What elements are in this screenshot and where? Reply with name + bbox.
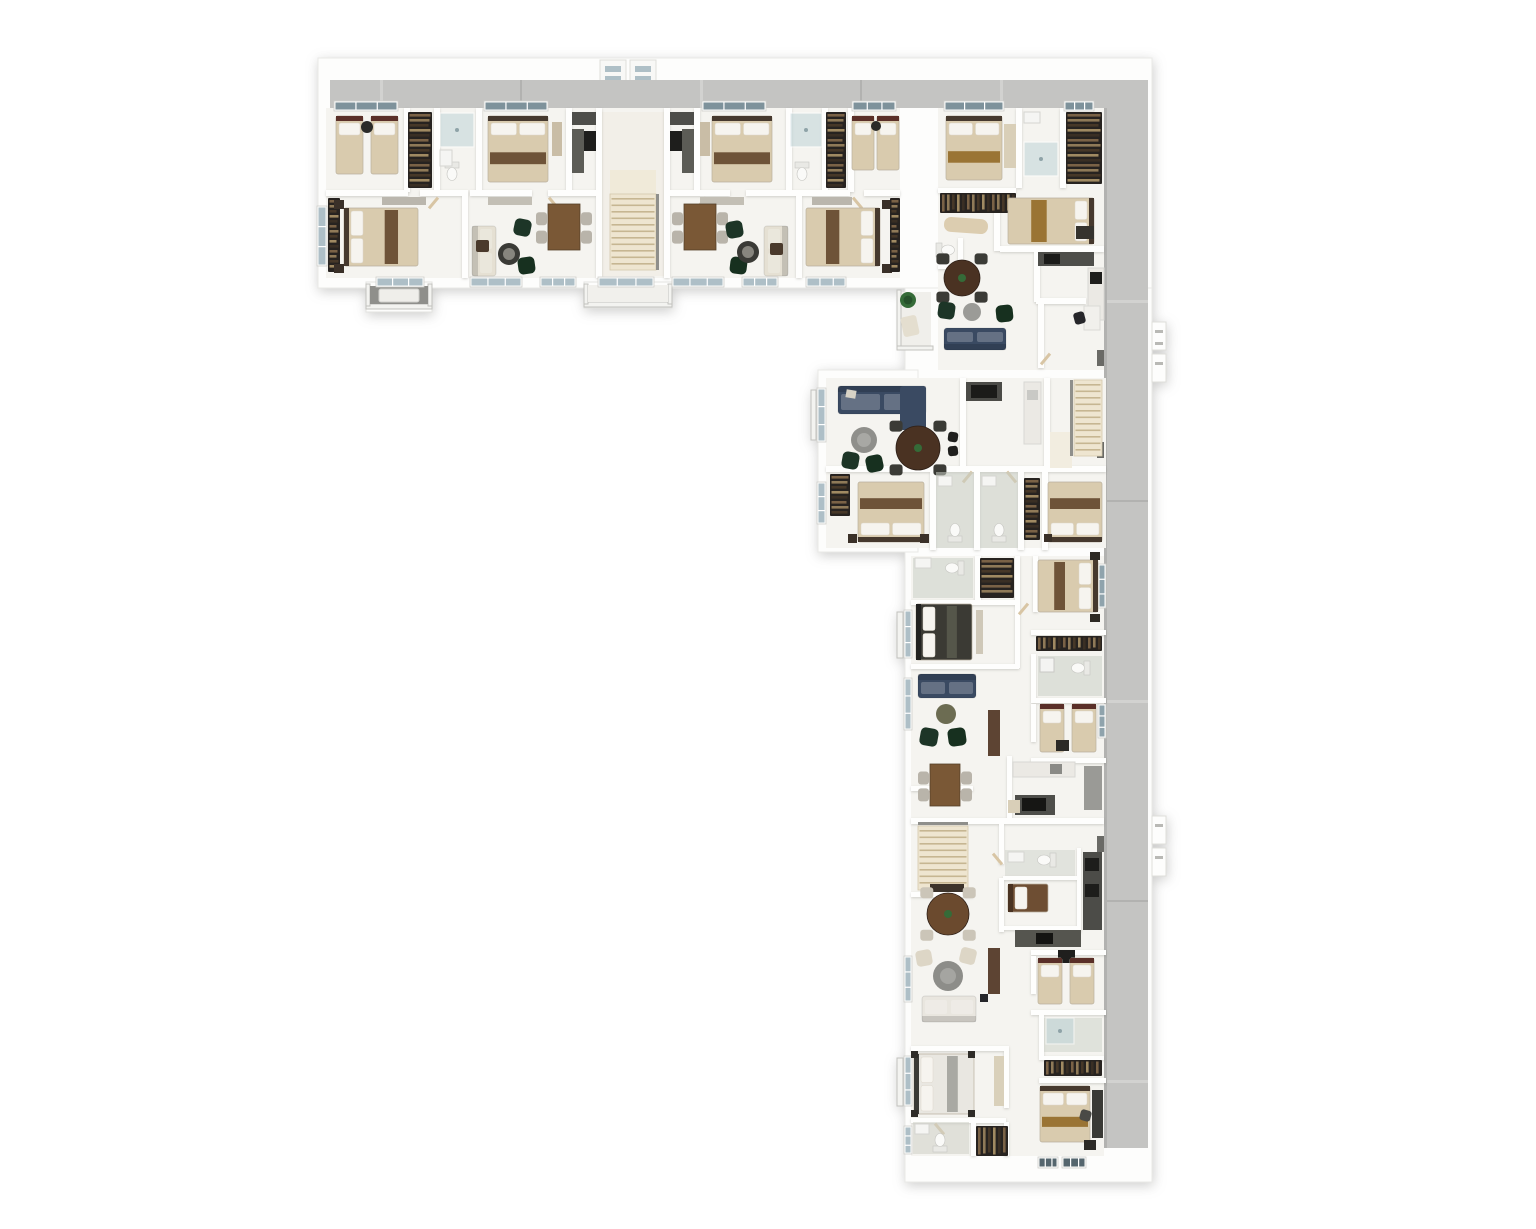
bed-single bbox=[336, 116, 363, 174]
wall bbox=[1031, 654, 1036, 698]
sink bbox=[1027, 390, 1038, 400]
service-box bbox=[1152, 322, 1166, 350]
bed-post bbox=[911, 1110, 918, 1117]
nightstand bbox=[1044, 534, 1052, 542]
sink bbox=[1050, 764, 1062, 774]
balcony-door bbox=[376, 277, 424, 287]
pouf-gray bbox=[963, 303, 981, 321]
wardrobe bbox=[994, 1056, 1004, 1106]
balcony-floor bbox=[588, 285, 668, 302]
wall bbox=[864, 190, 900, 196]
unit-entry-door bbox=[1097, 836, 1104, 852]
wall bbox=[462, 190, 468, 278]
pouf-green bbox=[995, 304, 1014, 323]
wall bbox=[930, 472, 936, 550]
sofa-chaise bbox=[900, 386, 926, 430]
stair-rail bbox=[918, 822, 968, 825]
shower bbox=[1046, 1018, 1074, 1044]
staircase bbox=[1074, 380, 1102, 456]
kitchen-cabinet bbox=[572, 129, 584, 173]
service-box bbox=[1152, 816, 1166, 844]
wall bbox=[746, 190, 798, 196]
window bbox=[702, 101, 766, 111]
wall bbox=[548, 190, 598, 196]
window bbox=[1098, 704, 1106, 738]
bench bbox=[976, 610, 983, 654]
kitchen-counter bbox=[670, 112, 694, 125]
window bbox=[817, 482, 826, 524]
stair-rail bbox=[1070, 380, 1073, 456]
chaise bbox=[944, 216, 989, 234]
cooktop bbox=[1036, 933, 1053, 944]
closet bbox=[826, 112, 846, 188]
window bbox=[484, 101, 548, 111]
stair-landing bbox=[610, 170, 656, 194]
side-table bbox=[361, 121, 373, 133]
sink bbox=[982, 476, 996, 486]
closet-row bbox=[1044, 1060, 1102, 1076]
balcony-rail bbox=[668, 284, 672, 304]
wall bbox=[434, 108, 440, 192]
cooktop bbox=[1022, 798, 1046, 811]
wall bbox=[694, 108, 700, 192]
window bbox=[904, 678, 912, 730]
floorplan-canvas bbox=[0, 0, 1536, 1229]
wall bbox=[670, 190, 730, 196]
wall bbox=[470, 190, 532, 196]
dresser bbox=[488, 197, 532, 205]
service-box-vent bbox=[1155, 330, 1163, 333]
window bbox=[806, 277, 846, 287]
balcony-rail bbox=[584, 302, 672, 307]
window bbox=[1062, 1157, 1086, 1168]
shower bbox=[790, 113, 822, 147]
bed-single-brown bbox=[1008, 884, 1048, 912]
chest bbox=[1056, 740, 1069, 751]
window bbox=[904, 610, 912, 658]
window bbox=[1038, 1157, 1058, 1168]
wall bbox=[1003, 926, 1077, 930]
wall bbox=[911, 1046, 1006, 1051]
roof-box-vent bbox=[635, 66, 651, 72]
juliet-rail bbox=[897, 1058, 903, 1106]
service-box-vent bbox=[1155, 824, 1163, 827]
nightstand bbox=[1090, 614, 1100, 622]
window bbox=[334, 101, 398, 111]
side-table bbox=[871, 121, 881, 131]
wall bbox=[802, 190, 850, 196]
closet bbox=[980, 558, 1014, 598]
floorplan-page bbox=[0, 0, 1536, 1229]
wall bbox=[566, 108, 572, 192]
dresser bbox=[382, 197, 426, 205]
shower bbox=[1024, 142, 1058, 176]
wall bbox=[476, 108, 482, 192]
sofa-pillow bbox=[845, 389, 856, 399]
bed-master bbox=[806, 208, 880, 266]
window bbox=[1098, 564, 1106, 608]
wall bbox=[664, 108, 670, 278]
wall bbox=[1016, 108, 1022, 188]
fridge bbox=[670, 131, 682, 151]
wall bbox=[1038, 304, 1044, 368]
nightstand bbox=[1084, 1140, 1096, 1150]
balcony-rail bbox=[366, 304, 432, 309]
wall bbox=[974, 472, 980, 550]
wall bbox=[1039, 1015, 1044, 1059]
wall bbox=[1077, 848, 1081, 932]
appliance bbox=[1085, 858, 1099, 871]
bed-double bbox=[1038, 560, 1098, 612]
lounger bbox=[379, 289, 419, 302]
sofa-cushion bbox=[476, 240, 489, 252]
bed-double bbox=[946, 116, 1002, 180]
appliance bbox=[1090, 272, 1102, 284]
dining-table-round bbox=[920, 887, 975, 940]
wall bbox=[1031, 630, 1106, 635]
pouf-green bbox=[517, 256, 536, 275]
window bbox=[904, 1126, 912, 1154]
bed-white bbox=[914, 1054, 974, 1114]
cabinet bbox=[1008, 800, 1020, 813]
unit-entry-door bbox=[1097, 350, 1104, 366]
sofa-navy bbox=[944, 328, 1006, 350]
sink bbox=[938, 476, 952, 486]
desk bbox=[1092, 1090, 1103, 1138]
closet bbox=[328, 198, 340, 272]
sofa-white bbox=[922, 996, 976, 1022]
nightstand bbox=[334, 264, 344, 273]
sink bbox=[915, 1124, 929, 1134]
pouf-olive bbox=[936, 704, 956, 724]
pouf-green bbox=[937, 301, 956, 320]
kitchen-cabinet bbox=[682, 129, 694, 173]
layer-floors bbox=[326, 108, 1106, 1156]
bed-double bbox=[858, 482, 924, 542]
fridge bbox=[584, 131, 596, 151]
wall bbox=[1044, 378, 1050, 470]
window bbox=[317, 206, 327, 266]
appliance bbox=[1085, 884, 1099, 897]
media-console bbox=[988, 710, 1000, 756]
walkin-closet bbox=[1066, 112, 1102, 184]
staircase bbox=[610, 194, 656, 270]
bed-single bbox=[1072, 704, 1096, 752]
bed-dark bbox=[916, 604, 972, 660]
wall bbox=[1031, 956, 1036, 994]
closet bbox=[408, 112, 432, 188]
kitchen-counter bbox=[1013, 762, 1075, 777]
window bbox=[470, 277, 522, 287]
pouf-green bbox=[725, 220, 745, 240]
stair-landing bbox=[1050, 432, 1072, 468]
window bbox=[904, 956, 912, 1002]
dining-table-round bbox=[936, 253, 987, 302]
concrete-inner-edge bbox=[1104, 108, 1107, 1148]
balcony-rail bbox=[366, 284, 370, 306]
bed-double bbox=[488, 116, 548, 182]
nightstand bbox=[920, 534, 929, 543]
sink bbox=[440, 150, 452, 166]
sofa-navy bbox=[918, 674, 976, 698]
window bbox=[672, 277, 724, 287]
media-console bbox=[988, 948, 1000, 994]
service-box bbox=[1152, 354, 1166, 382]
window bbox=[944, 101, 1004, 111]
stool bbox=[948, 446, 959, 457]
nightstand bbox=[334, 200, 344, 209]
service-box-vent bbox=[1155, 856, 1163, 859]
pouf-green bbox=[841, 451, 861, 471]
wall bbox=[1031, 1010, 1106, 1015]
bed-master bbox=[344, 208, 418, 266]
balcony-door bbox=[598, 277, 654, 287]
wall bbox=[1033, 556, 1038, 612]
kitchen-counter bbox=[572, 112, 596, 125]
bed-post bbox=[968, 1051, 975, 1058]
juliet-rail bbox=[897, 612, 903, 658]
washer bbox=[1040, 658, 1054, 672]
corridor-concrete bbox=[1104, 80, 1148, 1148]
bed-post bbox=[911, 1051, 918, 1058]
coffee-table-top bbox=[742, 246, 754, 258]
nightstand bbox=[1090, 552, 1100, 560]
roof-box-vent bbox=[605, 66, 621, 72]
wall bbox=[326, 190, 408, 196]
balcony-rail bbox=[897, 346, 933, 350]
wall bbox=[1004, 1046, 1009, 1108]
closet bbox=[830, 474, 850, 516]
nightstand bbox=[848, 534, 857, 543]
bed-single bbox=[1038, 958, 1062, 1004]
wall bbox=[999, 878, 1004, 932]
wall bbox=[999, 824, 1004, 864]
window bbox=[1064, 101, 1094, 111]
bed-double bbox=[1048, 482, 1102, 542]
sink bbox=[915, 558, 931, 568]
dining-table-round bbox=[890, 421, 947, 476]
wall bbox=[1018, 472, 1024, 550]
service-box-vent bbox=[1155, 362, 1163, 365]
wall bbox=[1039, 1056, 1104, 1060]
wall bbox=[911, 664, 1019, 669]
chair-green bbox=[919, 727, 940, 748]
window bbox=[817, 388, 826, 442]
shower bbox=[440, 113, 474, 147]
wall bbox=[1000, 246, 1104, 252]
balcony-rail bbox=[428, 284, 432, 306]
fridge bbox=[1084, 766, 1102, 810]
window bbox=[742, 277, 778, 287]
wall bbox=[1031, 704, 1036, 742]
bed-single bbox=[852, 116, 874, 170]
concrete-streak bbox=[1104, 300, 1148, 303]
service-box-vent bbox=[1155, 342, 1163, 345]
wardrobe bbox=[1004, 124, 1016, 168]
desk bbox=[1084, 306, 1100, 330]
wall bbox=[1031, 698, 1106, 703]
concrete-streak bbox=[1104, 500, 1148, 502]
balcony-rail bbox=[584, 284, 588, 304]
closet-row bbox=[940, 193, 1016, 213]
bed-post bbox=[968, 1110, 975, 1117]
console bbox=[930, 884, 964, 892]
bed-single bbox=[371, 116, 398, 174]
cooktop bbox=[1044, 254, 1060, 264]
wall bbox=[960, 378, 966, 470]
wall bbox=[420, 190, 464, 196]
service-box bbox=[1152, 848, 1166, 876]
wall bbox=[938, 188, 1016, 193]
stair-rail bbox=[656, 194, 659, 270]
wall bbox=[971, 1122, 976, 1156]
armchair-cream bbox=[915, 949, 934, 968]
bed-double bbox=[712, 116, 772, 182]
sink bbox=[1008, 852, 1024, 862]
coffee-table-top bbox=[503, 248, 515, 260]
wall bbox=[1039, 1078, 1106, 1083]
wall bbox=[796, 190, 802, 278]
cooktop bbox=[971, 385, 997, 398]
staircase bbox=[918, 826, 968, 890]
desk bbox=[1076, 226, 1094, 239]
closet-row bbox=[1036, 636, 1102, 651]
window bbox=[904, 1056, 912, 1106]
concrete-streak bbox=[1104, 1080, 1148, 1083]
closet bbox=[1024, 478, 1040, 540]
concrete-streak bbox=[1104, 900, 1148, 902]
sofa-cushion bbox=[770, 243, 783, 255]
dresser bbox=[812, 197, 852, 205]
side-table-top bbox=[857, 433, 871, 447]
juliet-rail bbox=[811, 390, 816, 440]
closet bbox=[976, 1126, 1008, 1156]
window bbox=[540, 277, 576, 287]
bed-single bbox=[1070, 958, 1094, 1004]
concrete-streak bbox=[1104, 700, 1148, 703]
wall bbox=[1060, 108, 1066, 188]
potted-plant bbox=[900, 292, 916, 308]
side-table-black bbox=[980, 994, 988, 1002]
dresser bbox=[552, 122, 562, 156]
stool bbox=[947, 431, 958, 442]
wall bbox=[1036, 298, 1086, 304]
window bbox=[852, 101, 896, 111]
wall bbox=[1003, 876, 1077, 880]
side-table-top bbox=[940, 968, 956, 984]
sink bbox=[1024, 112, 1040, 123]
dresser bbox=[700, 122, 710, 156]
chair-green bbox=[947, 727, 967, 747]
closet bbox=[890, 198, 900, 272]
